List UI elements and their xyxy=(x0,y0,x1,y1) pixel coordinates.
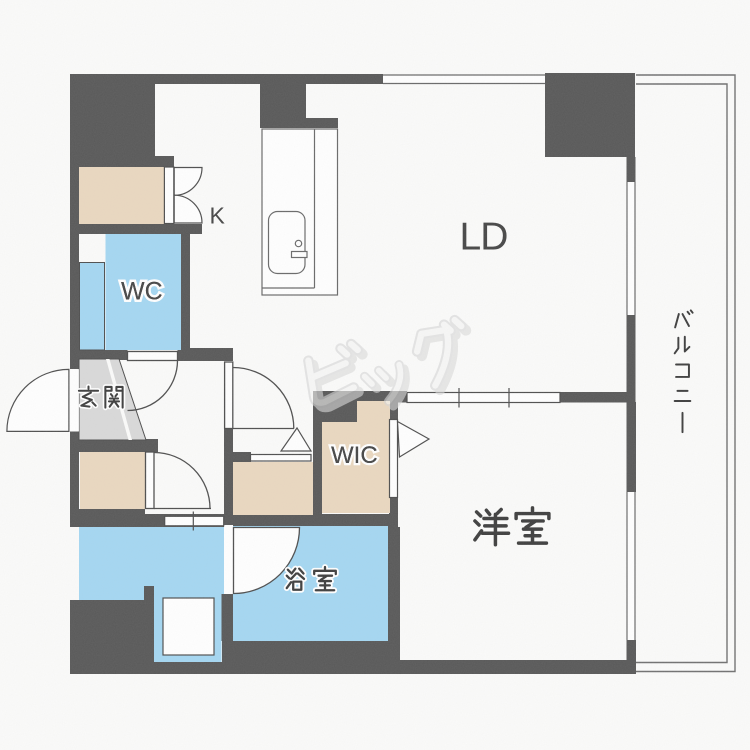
svg-text:WC: WC xyxy=(121,278,163,306)
svg-text:LD: LD xyxy=(460,216,508,259)
svg-text:WIC: WIC xyxy=(331,442,378,469)
svg-text:K: K xyxy=(210,202,226,228)
